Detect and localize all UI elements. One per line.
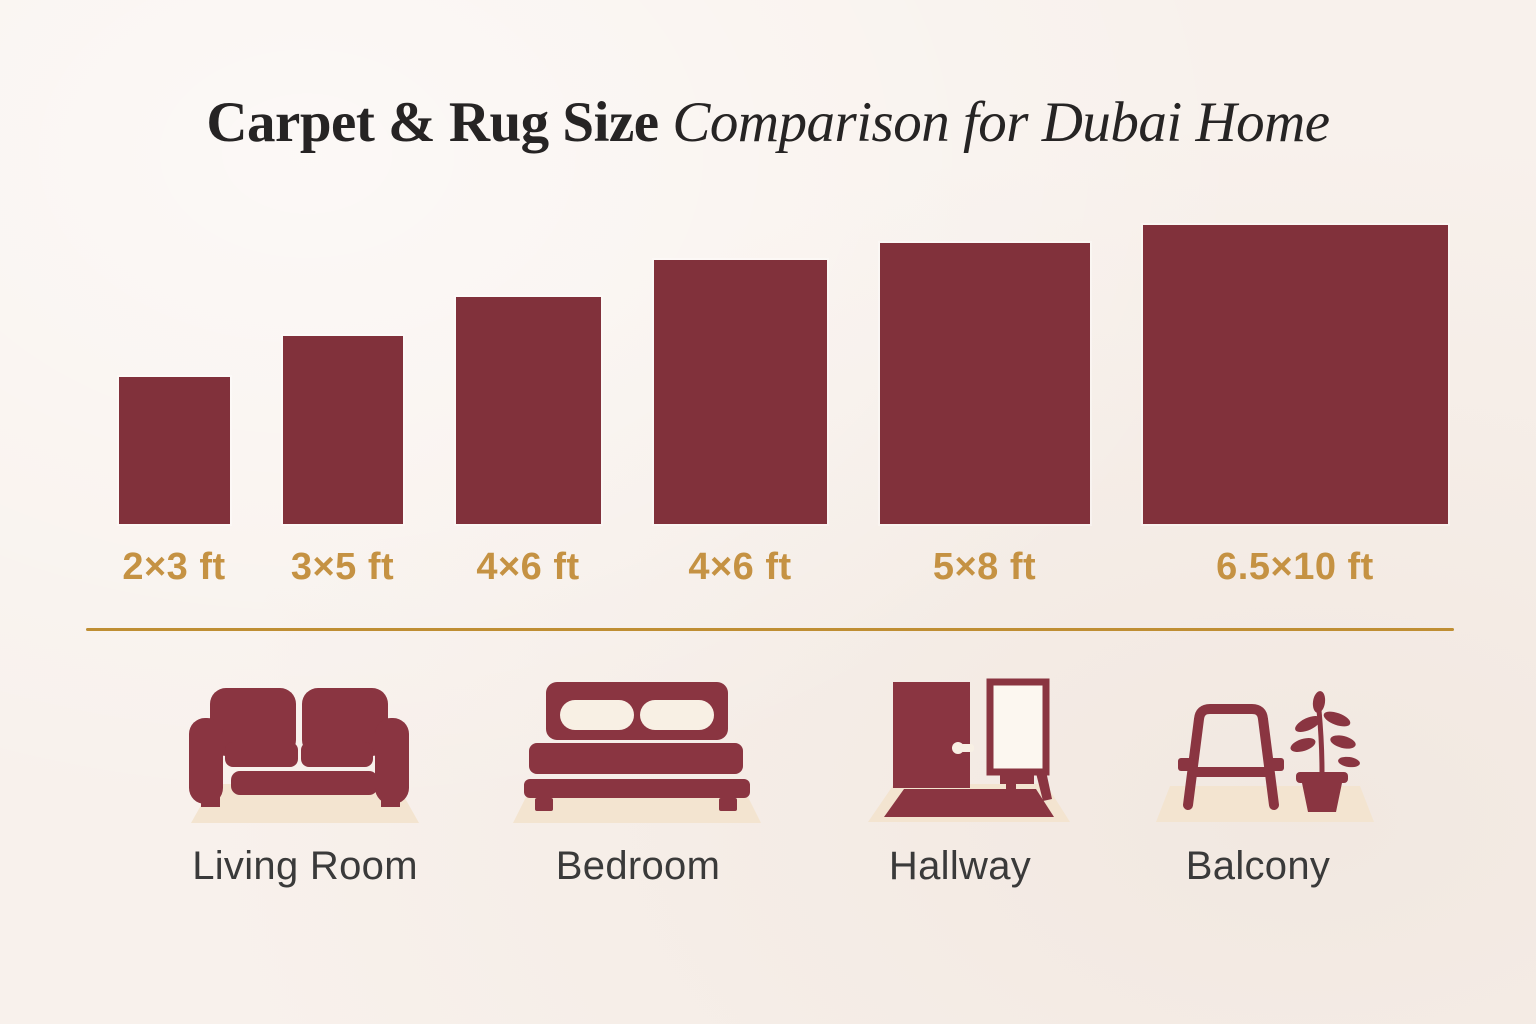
room-balcony: Balcony — [1103, 672, 1413, 889]
rug-size-label: 2×3 ft — [122, 546, 225, 588]
rug-column-4x6-b: 4×6 ft — [654, 260, 827, 588]
room-label: Living Room — [150, 844, 460, 889]
door-and-mirror-icon — [840, 672, 1080, 832]
rug-size-label: 6.5×10 ft — [1216, 546, 1374, 588]
divider-line — [86, 628, 1454, 631]
room-label: Balcony — [1103, 844, 1413, 889]
rug-size-label: 3×5 ft — [291, 546, 394, 588]
sofa-icon — [185, 672, 425, 832]
infographic-canvas: Carpet & Rug Size Comparison for Dubai H… — [0, 0, 1536, 1024]
rug-column-4x6-a: 4×6 ft — [456, 297, 601, 588]
room-label: Hallway — [805, 844, 1115, 889]
rug-swatch-4x6-b — [654, 260, 827, 524]
rug-swatch-3x5 — [283, 336, 403, 524]
rug-swatch-4x6-a — [456, 297, 601, 524]
rug-swatch-5x8 — [880, 243, 1090, 524]
rug-swatch-2x3 — [119, 377, 230, 524]
bed-icon — [513, 672, 763, 832]
rug-size-label: 4×6 ft — [688, 546, 791, 588]
runner-rug-shape — [884, 789, 1054, 817]
rug-column-2x3: 2×3 ft — [119, 377, 230, 588]
door-icon — [893, 682, 974, 788]
room-living-room: Living Room — [150, 672, 460, 889]
rug-size-chart: 2×3 ft 3×5 ft 4×6 ft 4×6 ft 5×8 ft 6.5×1… — [0, 0, 1536, 588]
room-bedroom: Bedroom — [483, 672, 793, 889]
rooms-row: Living Room Bedroom — [0, 672, 1536, 972]
room-hallway: Hallway — [805, 672, 1115, 889]
room-label: Bedroom — [483, 844, 793, 889]
rug-column-6p5x10: 6.5×10 ft — [1143, 225, 1448, 588]
chair-and-plant-icon — [1138, 672, 1378, 832]
rug-column-5x8: 5×8 ft — [880, 243, 1090, 588]
rug-column-3x5: 3×5 ft — [283, 336, 403, 588]
rug-swatch-6p5x10 — [1143, 225, 1448, 524]
rug-size-label: 5×8 ft — [933, 546, 1036, 588]
rug-size-label: 4×6 ft — [476, 546, 579, 588]
